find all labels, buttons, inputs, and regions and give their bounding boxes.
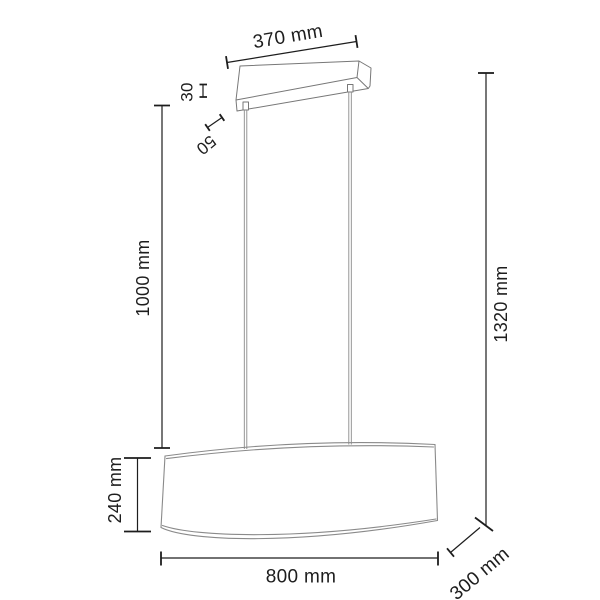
- dim-label-shade-height: 240 mm: [106, 457, 124, 524]
- cable-connector-left: [243, 102, 249, 110]
- suspension-cables: [244, 92, 351, 449]
- dim-label-canopy-height: 30: [179, 82, 196, 102]
- dim-label-shade-width: 800 mm: [266, 568, 336, 587]
- dim-label-cable-length: 1000 mm: [134, 239, 152, 316]
- dimension-ticks: [124, 35, 494, 565]
- dim-line-connector: [208, 118, 223, 128]
- dim-line-shade-depth: [451, 528, 481, 553]
- cable-connector-right: [348, 85, 354, 93]
- dim-label-total-height: 1320 mm: [492, 265, 510, 342]
- lampshade: [161, 443, 438, 539]
- diagram-canvas: 370 mm 30 50 1000 mm 1320 mm 240 mm 800 …: [0, 0, 600, 600]
- dimension-lines: [124, 35, 494, 565]
- ceiling-canopy: [236, 61, 371, 111]
